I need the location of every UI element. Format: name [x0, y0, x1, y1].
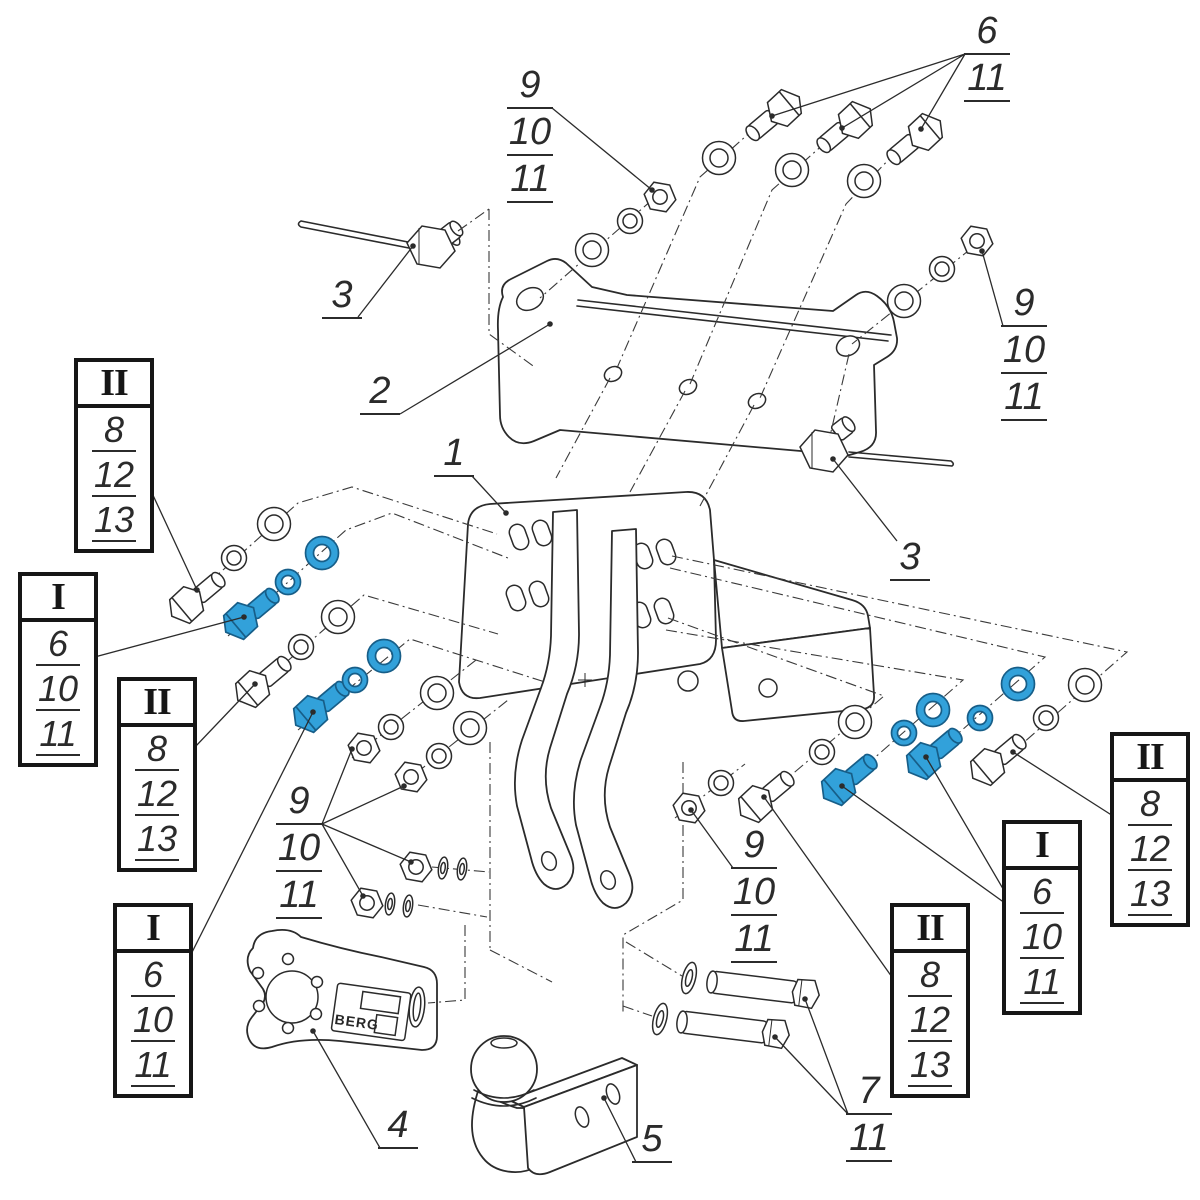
item-number: 7	[846, 1070, 892, 1115]
part-4-socket-plate: BERG	[247, 930, 437, 1050]
callout-box-right-bottom: II 8 12 13	[890, 903, 970, 1098]
nut	[351, 888, 383, 918]
item-number: 10	[276, 827, 322, 872]
exploded-assembly-diagram: BERG	[0, 0, 1200, 1200]
variant-item: 11	[1020, 962, 1064, 1004]
washer-highlighted	[968, 706, 993, 731]
washer	[576, 234, 609, 267]
washer	[679, 961, 699, 995]
variant-item: 13	[908, 1045, 952, 1087]
center-left-nut-cluster	[348, 677, 486, 918]
bolt	[228, 648, 298, 714]
variant-item: 12	[92, 455, 136, 497]
washer	[703, 142, 736, 175]
variant-item: 12	[135, 774, 179, 816]
part-callout-4: 4	[378, 1104, 418, 1149]
item-number: 11	[1001, 376, 1047, 421]
stacked-label-right-upper: 9 10 11	[1001, 282, 1047, 423]
stacked-label-center-left: 9 10 11	[276, 780, 322, 921]
variant-roman: I	[1006, 824, 1078, 870]
nut	[644, 182, 676, 212]
washer	[1069, 669, 1102, 702]
washer-highlighted	[1002, 668, 1035, 701]
washer	[427, 744, 452, 769]
washer-highlighted	[368, 640, 401, 673]
washer	[258, 508, 291, 541]
washer	[402, 894, 414, 917]
part-callout-3-left: 3	[322, 274, 362, 319]
washer	[379, 715, 404, 740]
item-number: 11	[507, 158, 553, 203]
washer	[289, 635, 314, 660]
washer	[1034, 706, 1059, 731]
item-number: 11	[846, 1117, 892, 1162]
callout-box-right-mid: I 6 10 11	[1002, 820, 1082, 1015]
variant-item: 6	[131, 955, 175, 997]
washer	[810, 740, 835, 765]
top-right-nut-chain	[888, 226, 993, 317]
variant-item: 12	[1128, 829, 1172, 871]
variant-item: 10	[36, 669, 80, 711]
bolt-highlighted	[216, 580, 286, 646]
washer	[650, 1002, 670, 1036]
part-callout-1: 1	[434, 432, 474, 477]
washer-highlighted	[892, 721, 917, 746]
variant-roman: II	[78, 362, 150, 408]
washer	[930, 257, 955, 282]
stacked-label-bottom-right: 7 11	[846, 1070, 892, 1164]
variant-item: 10	[1020, 917, 1064, 959]
washer	[709, 771, 734, 796]
part-1-main-bracket	[459, 492, 874, 908]
washer	[456, 857, 468, 880]
variant-item: 12	[908, 1000, 952, 1042]
washer	[384, 892, 396, 915]
bolt	[810, 96, 880, 162]
bolt	[162, 564, 232, 630]
washer	[839, 706, 872, 739]
nut	[673, 793, 705, 823]
stacked-label-top-middle: 9 10 11	[507, 64, 553, 205]
washer	[618, 209, 643, 234]
washer-highlighted	[306, 537, 339, 570]
bottom-long-bolts	[650, 961, 821, 1049]
part-callout-2: 2	[360, 370, 400, 415]
variant-item: 6	[1020, 872, 1064, 914]
nut	[400, 852, 432, 882]
variant-item: 10	[131, 1000, 175, 1042]
variant-item: 8	[908, 955, 952, 997]
item-number: 9	[1001, 282, 1047, 327]
variant-roman: I	[22, 576, 94, 622]
variant-item: 11	[36, 714, 80, 756]
washer	[888, 285, 921, 318]
stacked-label-bottom-center: 9 10 11	[731, 824, 777, 965]
left-fastener-rows	[162, 508, 400, 739]
callout-box-left-mid: I 6 10 11	[18, 572, 98, 767]
top-bolt-set	[703, 84, 950, 198]
variant-item: 8	[135, 729, 179, 771]
item-number: 9	[507, 64, 553, 109]
item-number: 9	[276, 780, 322, 825]
part-callout-5: 5	[632, 1118, 672, 1163]
part-5-ball-hitch	[471, 1036, 637, 1174]
callout-box-left-top: II 8 12 13	[74, 358, 154, 553]
washer-highlighted	[276, 570, 301, 595]
stacked-label-top-right: 6 11	[964, 10, 1010, 104]
variant-item: 8	[1128, 784, 1172, 826]
variant-item: 11	[131, 1045, 175, 1087]
washer	[848, 165, 881, 198]
nut	[961, 226, 993, 256]
washer	[454, 712, 487, 745]
washer	[322, 601, 355, 634]
item-number: 10	[507, 111, 553, 156]
part-callout-3-right: 3	[890, 536, 930, 581]
item-number: 10	[731, 871, 777, 916]
variant-roman: II	[121, 681, 193, 727]
top-middle-nut-chain	[576, 182, 676, 266]
washer	[437, 856, 449, 879]
variant-roman: II	[894, 907, 966, 953]
variant-item: 6	[36, 624, 80, 666]
variant-item: 13	[135, 819, 179, 861]
item-number: 11	[276, 874, 322, 919]
item-number: 11	[964, 57, 1010, 102]
item-number: 6	[964, 10, 1010, 55]
washer	[421, 677, 454, 710]
washer-highlighted	[343, 668, 368, 693]
washer-highlighted	[917, 694, 950, 727]
item-number: 10	[1001, 329, 1047, 374]
callout-box-right-top: II 8 12 13	[1110, 732, 1190, 927]
variant-roman: II	[1114, 736, 1186, 782]
part-3-pin-bolt-left	[299, 219, 466, 268]
item-number: 9	[731, 824, 777, 869]
washer	[776, 154, 809, 187]
variant-item: 13	[92, 500, 136, 542]
variant-roman: I	[117, 907, 189, 953]
variant-item: 13	[1128, 874, 1172, 916]
item-number: 11	[731, 918, 777, 963]
washer	[222, 546, 247, 571]
bolt	[880, 108, 950, 174]
variant-item: 8	[92, 410, 136, 452]
callout-box-left-bottom: I 6 10 11	[113, 903, 193, 1098]
callout-box-left-lower: II 8 12 13	[117, 677, 197, 872]
